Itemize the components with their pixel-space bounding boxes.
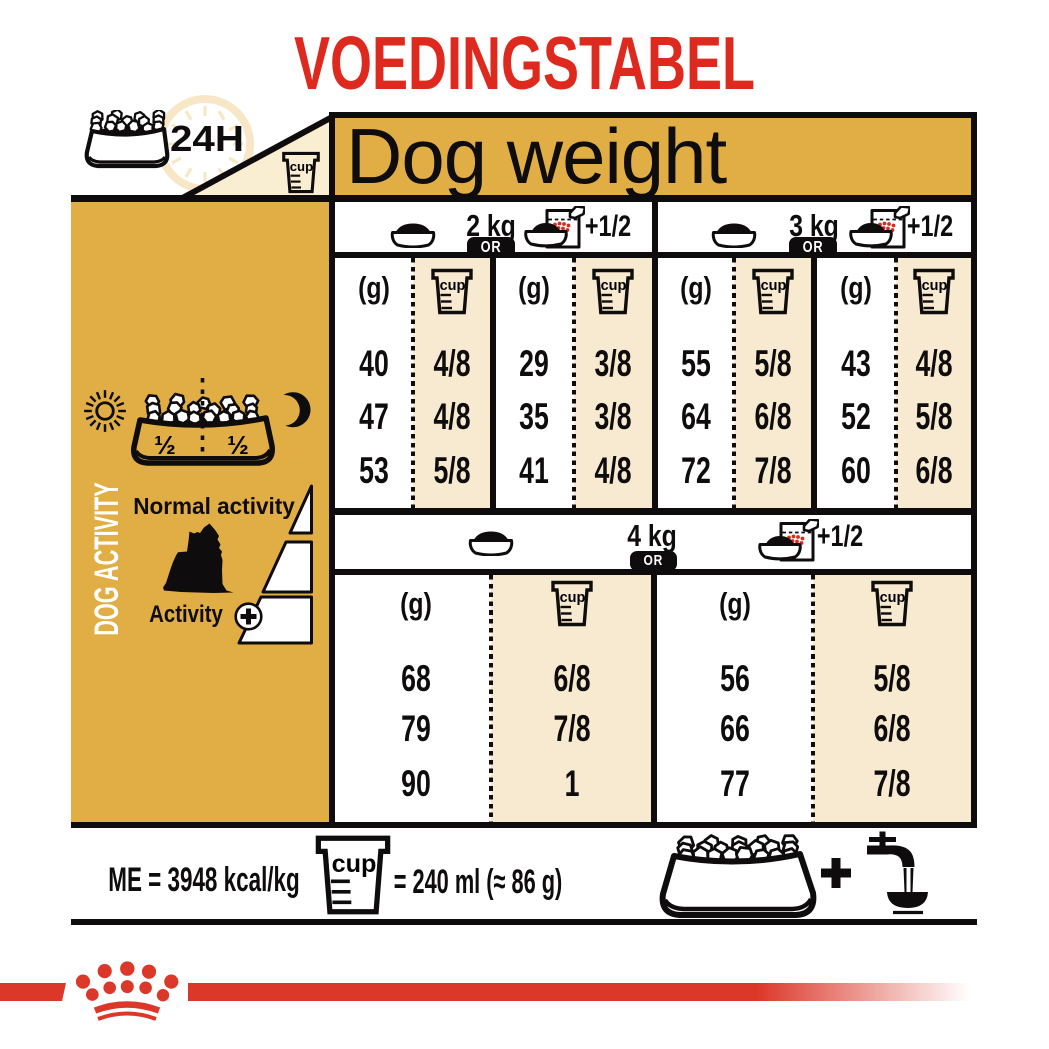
- svg-text:½: ½: [154, 430, 176, 460]
- svg-text:½: ½: [227, 430, 249, 460]
